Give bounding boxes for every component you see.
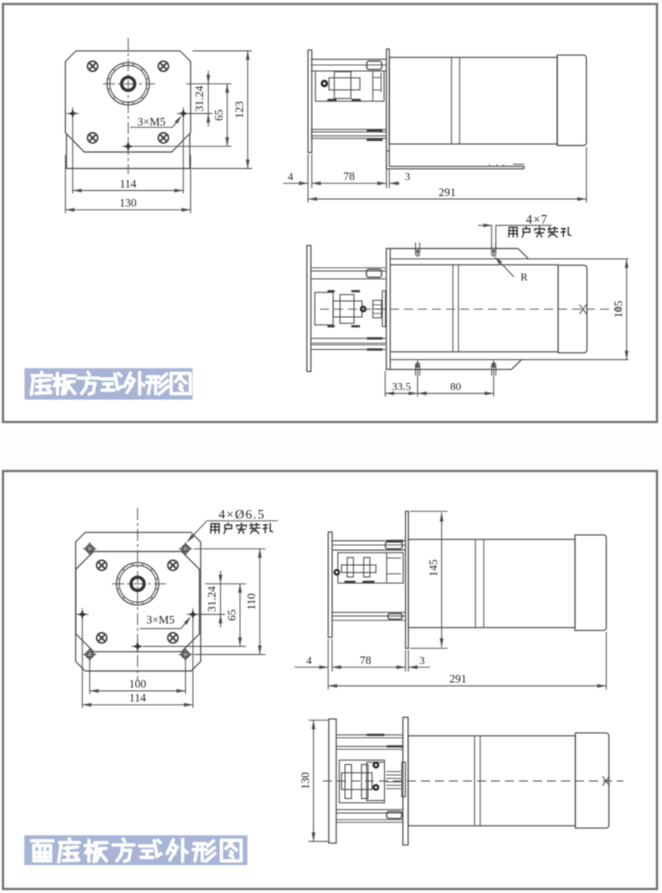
svg-text:4×7: 4×7 [526,212,548,226]
svg-text:4: 4 [306,655,312,667]
svg-text:105: 105 [613,300,625,318]
svg-text:123: 123 [234,101,246,119]
svg-text:R: R [520,272,528,284]
svg-text:4×Ø6.5: 4×Ø6.5 [219,507,266,522]
svg-text:31.24: 31.24 [206,586,218,612]
svg-text:3×M5: 3×M5 [146,614,174,626]
svg-text:130: 130 [300,772,312,790]
svg-text:291: 291 [439,187,457,199]
svg-text:65: 65 [226,609,238,621]
svg-text:78: 78 [360,655,372,667]
svg-text:3: 3 [405,171,411,183]
svg-text:80: 80 [450,381,462,393]
svg-text:114: 114 [120,178,137,190]
svg-text:100: 100 [129,679,147,691]
svg-text:65: 65 [214,109,226,121]
svg-text:31.24: 31.24 [194,86,206,112]
svg-text:291: 291 [449,674,467,686]
svg-text:114: 114 [129,693,146,705]
svg-text:78: 78 [343,171,355,183]
svg-text:145: 145 [428,559,440,577]
svg-text:110: 110 [246,593,258,610]
svg-text:4: 4 [288,171,294,183]
svg-text:33.5: 33.5 [392,381,412,393]
svg-text:130: 130 [119,198,137,210]
svg-text:3: 3 [419,655,425,667]
svg-text:3×M5: 3×M5 [137,116,165,128]
